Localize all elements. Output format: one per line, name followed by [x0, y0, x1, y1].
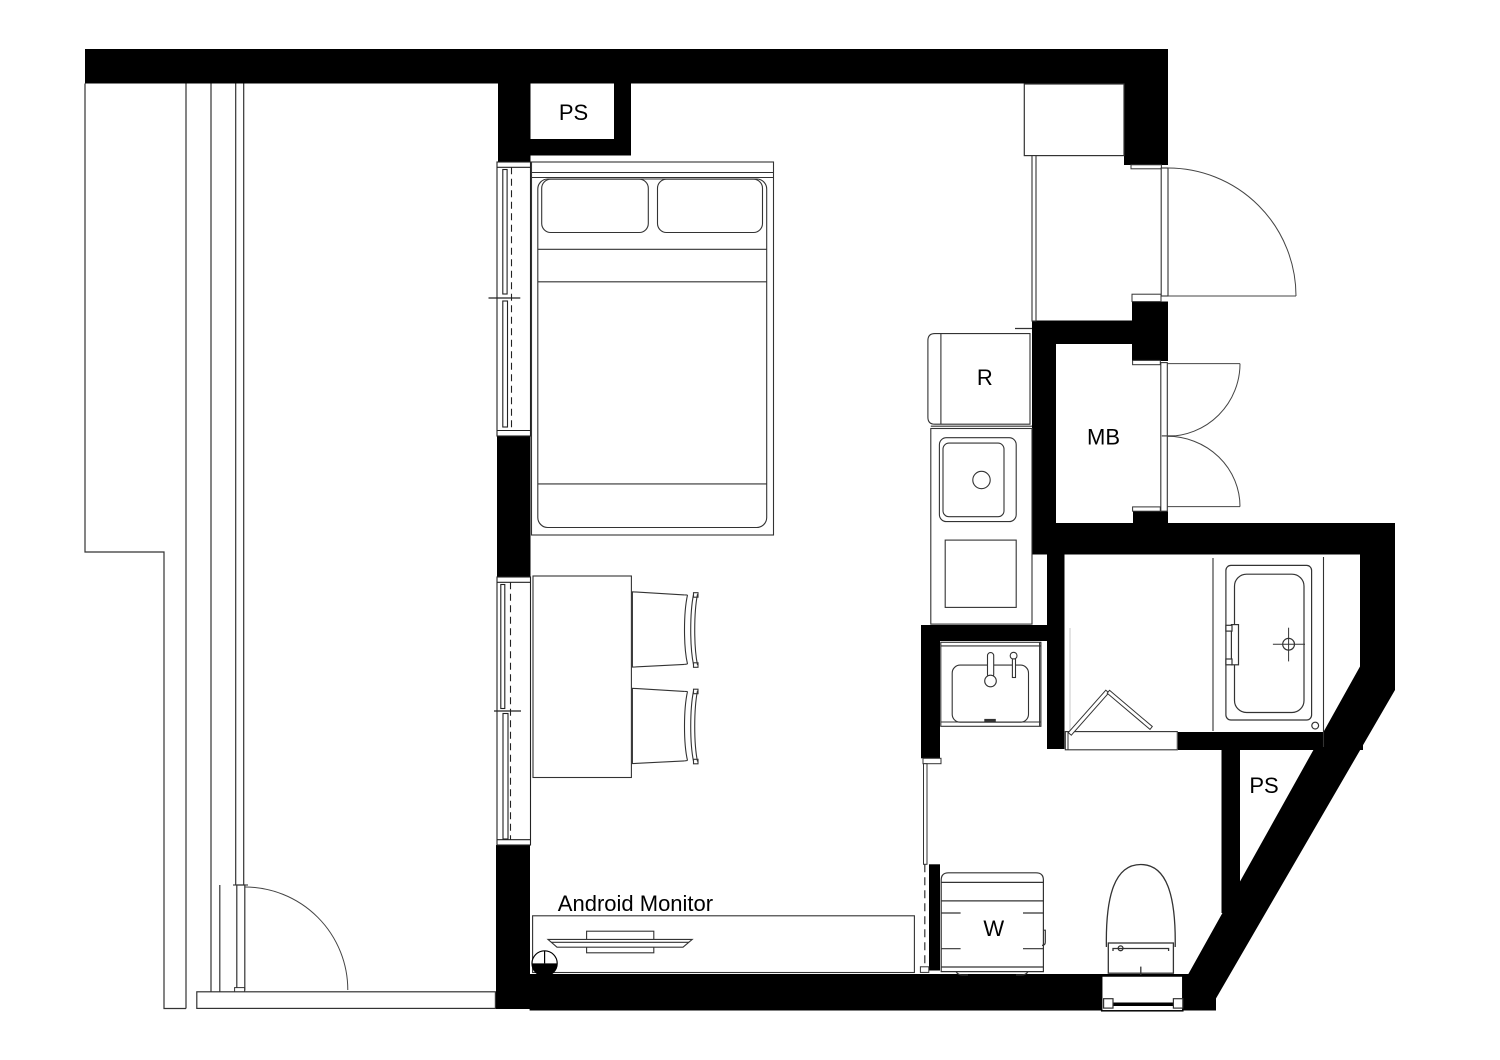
svg-text:PS: PS	[1249, 773, 1278, 798]
svg-text:R: R	[977, 365, 993, 390]
svg-text:PS: PS	[559, 100, 588, 125]
svg-text:W: W	[983, 916, 1004, 941]
svg-text:Android Monitor: Android Monitor	[558, 891, 713, 916]
svg-text:MB: MB	[1087, 425, 1120, 450]
